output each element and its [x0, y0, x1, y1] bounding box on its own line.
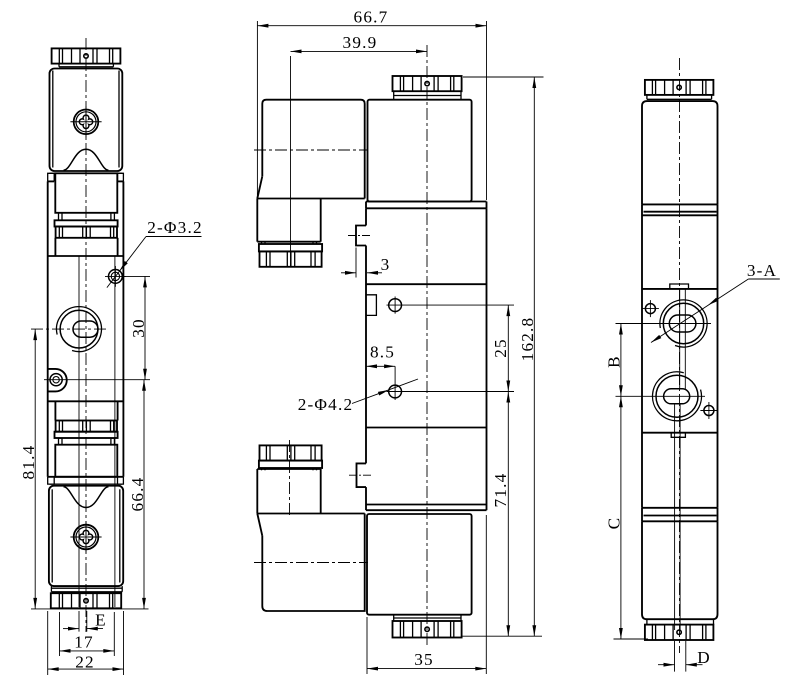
svg-text:39.9: 39.9: [343, 33, 378, 52]
svg-text:30: 30: [129, 318, 148, 338]
svg-text:66.4: 66.4: [128, 477, 147, 512]
svg-text:25: 25: [491, 338, 510, 358]
svg-text:35: 35: [414, 650, 434, 669]
svg-text:71.4: 71.4: [491, 473, 510, 508]
svg-text:2-Φ3.2: 2-Φ3.2: [147, 218, 203, 237]
svg-text:17: 17: [74, 633, 94, 652]
svg-text:66.7: 66.7: [354, 8, 389, 27]
svg-text:C: C: [605, 517, 624, 530]
svg-text:E: E: [95, 611, 107, 630]
svg-text:8.5: 8.5: [370, 343, 395, 362]
svg-text:D: D: [697, 648, 711, 667]
svg-text:2-Φ4.2: 2-Φ4.2: [298, 395, 354, 414]
svg-text:162.8: 162.8: [518, 317, 537, 362]
svg-text:B: B: [605, 355, 624, 368]
svg-text:3: 3: [381, 255, 391, 274]
svg-text:3-A: 3-A: [747, 261, 777, 280]
svg-text:81.4: 81.4: [19, 445, 38, 480]
svg-text:22: 22: [75, 653, 95, 672]
